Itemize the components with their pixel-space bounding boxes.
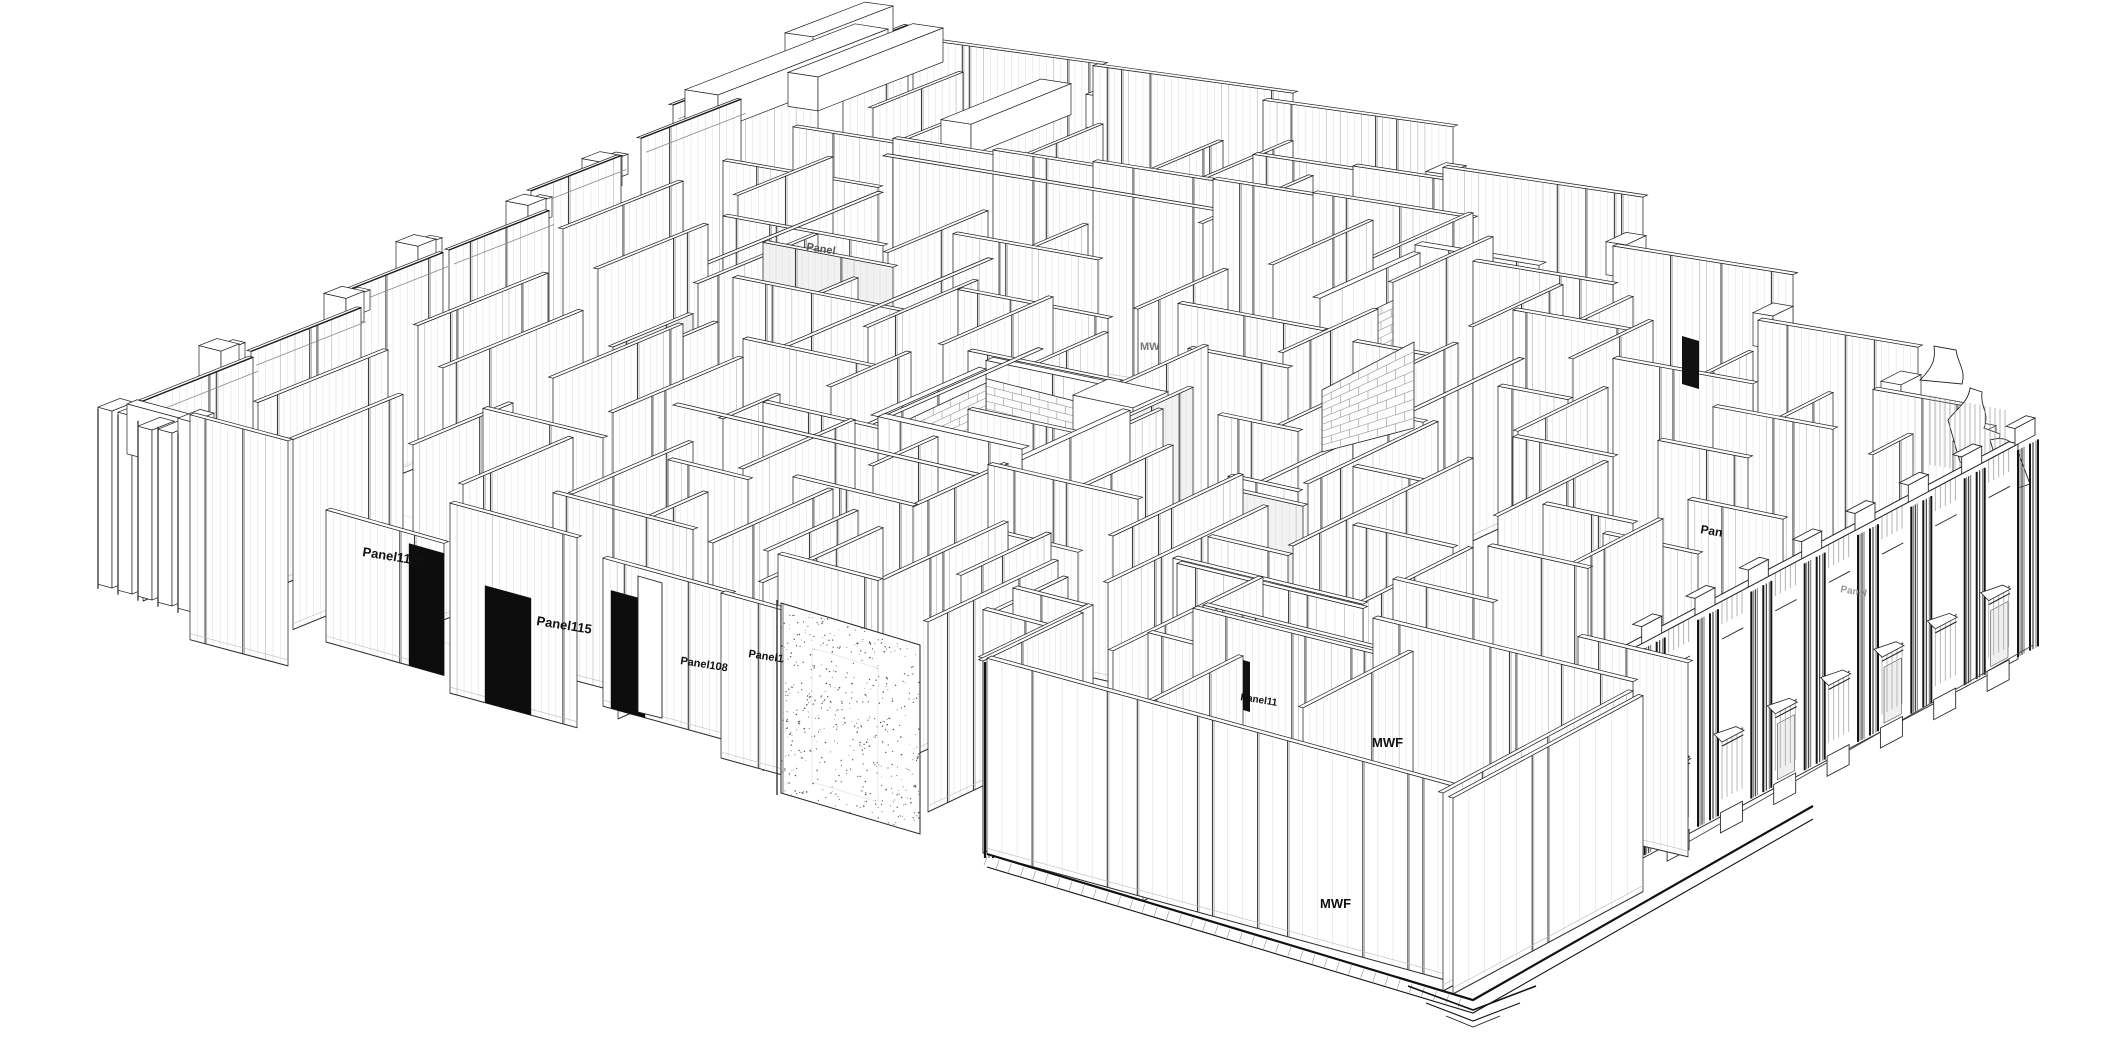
svg-text:MWF: MWF (1320, 896, 1351, 911)
svg-text:MW: MW (1140, 341, 1160, 353)
svg-text:MWF: MWF (1372, 735, 1403, 750)
